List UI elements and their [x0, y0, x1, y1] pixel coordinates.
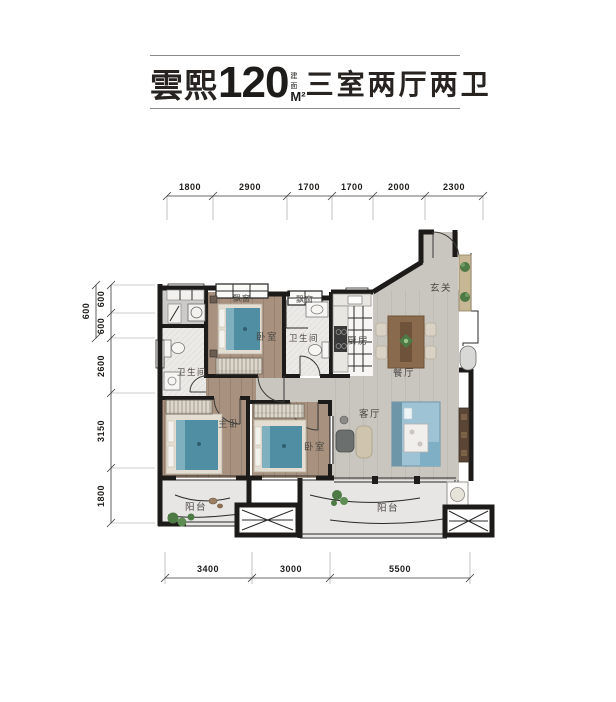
dimension-top: 1800 2900 1700 1700 2000 2300: [163, 182, 487, 220]
wardrobe-master: [166, 400, 212, 414]
floorplan-drawing: 飘窗 飘窗 卧室 卫生间 卫生间 厨房 玄关 餐厅 客厅 主卧 卧室 阳台 阳台…: [0, 0, 616, 702]
armchair: [336, 430, 354, 452]
dim-top-6: 2300: [443, 182, 465, 192]
kitchen-sink: [348, 296, 362, 304]
label-bedroom-top: 卧室: [256, 331, 278, 343]
dim-left-3: 2600: [96, 355, 106, 377]
side-table: [340, 416, 348, 424]
pillow: [219, 309, 225, 327]
toilet-tank-mid: [322, 342, 329, 358]
dim-left-5: 1800: [96, 485, 106, 507]
floors: [162, 232, 459, 537]
label-bedroom-right: 卧室: [304, 441, 326, 453]
plant-icon: [460, 262, 470, 272]
dim-top-5: 2000: [388, 182, 410, 192]
dimension-bottom: 3400 3000 5500: [161, 552, 474, 584]
decor-stones: [209, 498, 217, 504]
pillow: [255, 427, 261, 445]
label-dining: 餐厅: [393, 367, 415, 379]
label-balcony-right: 阳台: [377, 502, 399, 514]
nightstand: [210, 296, 217, 303]
ac-platform-2: [445, 507, 492, 535]
dim-top-3: 1700: [298, 182, 320, 192]
toilet-left-icon: [172, 343, 185, 354]
wardrobe-bedroom-top: [216, 358, 262, 374]
wardrobe-bedroom-right: [254, 404, 304, 418]
dim-left-1: 600: [96, 291, 106, 308]
plant-icon: [332, 490, 342, 500]
dim-top-4: 1700: [341, 182, 363, 192]
pillow: [168, 421, 174, 442]
dim-bottom-3: 5500: [389, 564, 411, 574]
dim-top-1: 1800: [179, 182, 201, 192]
pillow: [219, 330, 225, 348]
vanity-mid: [306, 302, 328, 317]
label-bath-left: 卫生间: [177, 367, 207, 377]
pillow: [255, 448, 261, 466]
right-niche-unit: [460, 346, 476, 370]
dining-chair: [376, 346, 387, 359]
dim-left-4: 3150: [96, 420, 106, 442]
toilet-mid-icon: [309, 345, 322, 356]
sofa-back: [392, 402, 402, 466]
floorplan-page: 雲熙 120 建面 M² 三室两厅两卫: [0, 0, 616, 702]
label-kitchen: 厨房: [347, 335, 369, 347]
utility-cabinet: [167, 290, 204, 300]
dining-chair: [425, 346, 436, 359]
pillow: [168, 446, 174, 467]
dining-chair: [376, 323, 387, 336]
dining-chair: [425, 323, 436, 336]
dim-left-2: 600: [96, 318, 106, 335]
dim-top-2: 2900: [239, 182, 261, 192]
plant-icon: [168, 513, 179, 524]
dim-left-outer: 600: [81, 303, 91, 320]
label-entry: 玄关: [430, 282, 452, 294]
dimension-left: 600 600 600 2600 3150 1800: [81, 281, 155, 527]
plant-icon: [460, 292, 470, 302]
toilet-tank-left: [164, 340, 171, 357]
coffee-table: [404, 424, 428, 452]
label-bay-window-1: 飘窗: [233, 293, 251, 303]
label-balcony-left: 阳台: [185, 501, 207, 513]
washer: [188, 304, 205, 321]
nightstand: [210, 350, 217, 357]
label-living: 客厅: [359, 408, 381, 420]
label-bay-window-2: 飘窗: [296, 294, 314, 304]
label-master: 主卧: [218, 418, 240, 430]
lounge-chair: [356, 426, 372, 458]
dim-bottom-2: 3000: [280, 564, 302, 574]
label-bath-mid: 卫生间: [289, 333, 319, 343]
ac-platform-1: [237, 505, 298, 535]
bedroom-living-partition: [330, 416, 333, 464]
corridor-gray-floor: [256, 378, 334, 402]
dim-bottom-1: 3400: [197, 564, 219, 574]
sofa-cushion: [404, 408, 412, 419]
